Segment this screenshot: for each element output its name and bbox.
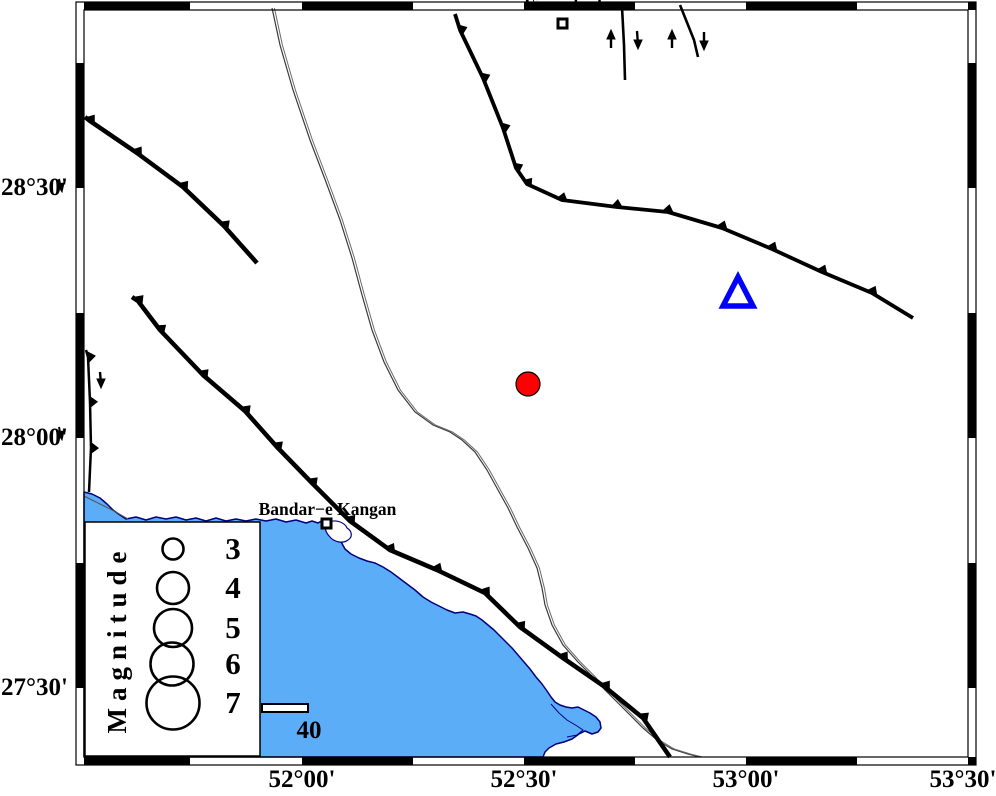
legend-magnitude-7: 7 [216,685,250,721]
earthquake-epicenter-marker [516,372,540,396]
scale-bar [262,704,308,712]
fault-west-edge [86,350,91,492]
legend-magnitude-3: 3 [216,531,250,567]
slip-arrow-down-icon [634,31,642,49]
legend-magnitude-6: 6 [216,646,250,682]
seismicity-map: 28°30' 28°00' 27°30' 52°00' 52°30' 53°00… [0,0,996,796]
lon-label-53-30: 53°30' [908,765,996,795]
lat-label-28-00: 28°00' [0,423,68,453]
fault-strikeslip-b [680,5,698,57]
scale-bar-label: 40 [288,717,330,745]
fault-strikeslip-a [622,7,625,80]
station-triangle-marker [723,277,753,306]
city-label-bandar-e-kangan: Bandar−e Kangan [255,499,400,520]
legend-magnitude-5: 5 [216,610,250,646]
slip-arrow-down-icon [97,372,105,388]
slip-arrow-up-icon [607,30,615,48]
city-marker-kangan [322,519,331,528]
lat-label-27-30: 27°30' [0,673,68,703]
city-label-firuzabad: Firuzabad [511,0,615,15]
lat-label-28-30: 28°30' [0,173,68,203]
lon-label-53-00: 53°00' [691,765,801,795]
legend-magnitude-4: 4 [216,570,250,606]
fault-northwest [85,117,257,263]
lon-label-52-00: 52°00' [247,765,357,795]
lon-label-52-30: 52°30' [469,765,579,795]
slip-arrow-up-icon [668,30,676,48]
slip-arrows [57,30,708,440]
fault-north-long [455,14,913,318]
map-canvas [0,0,996,796]
slip-arrow-down-icon [700,32,708,50]
city-marker-firuzabad [558,19,567,28]
legend-title: Magnitude [101,514,133,764]
